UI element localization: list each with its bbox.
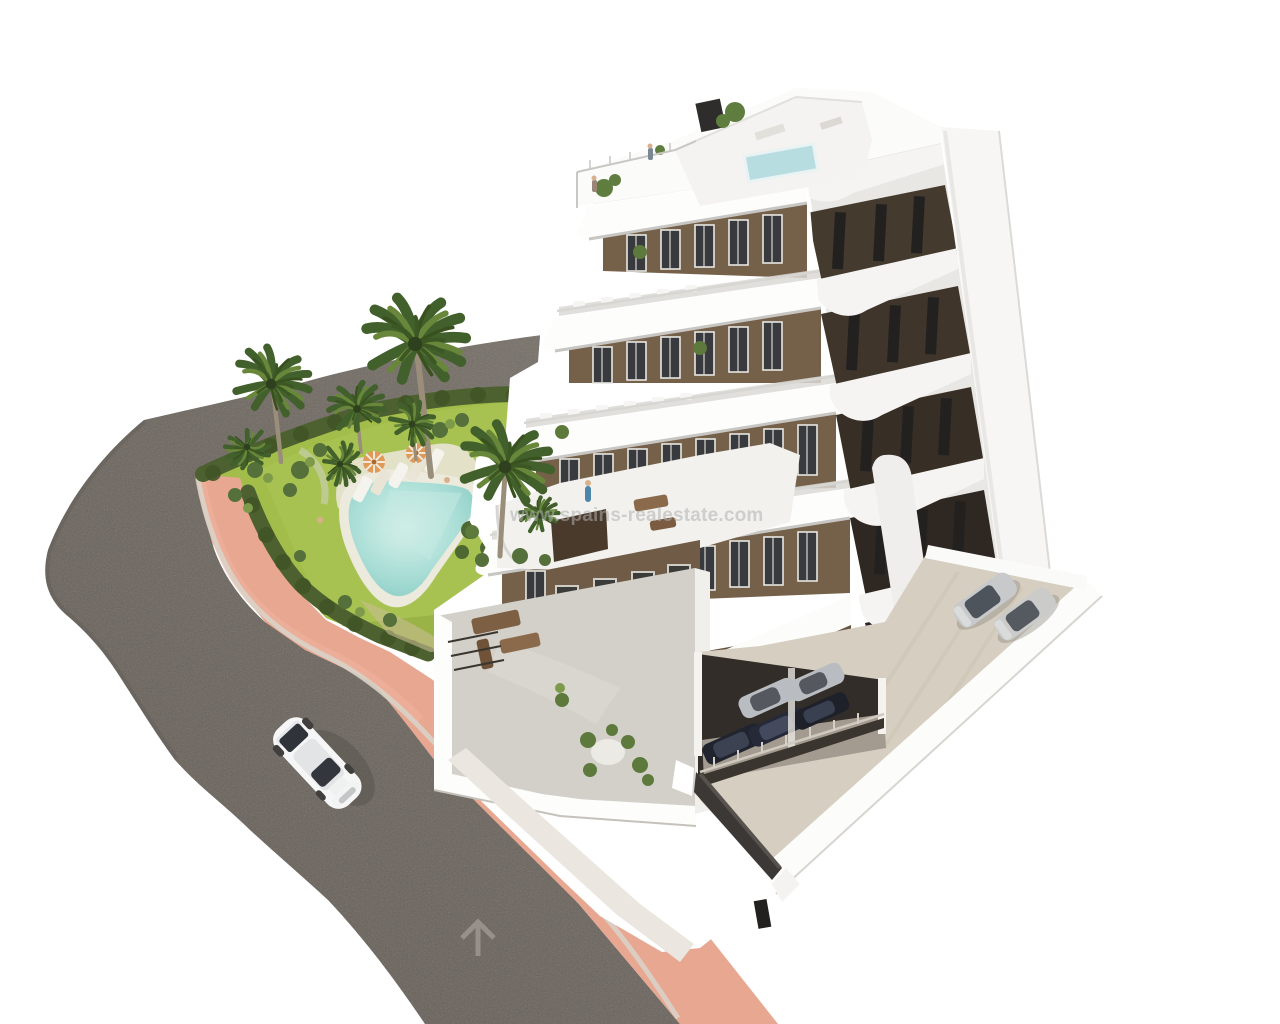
svg-text:www.spains-realestate.com: www.spains-realestate.com <box>509 505 764 526</box>
